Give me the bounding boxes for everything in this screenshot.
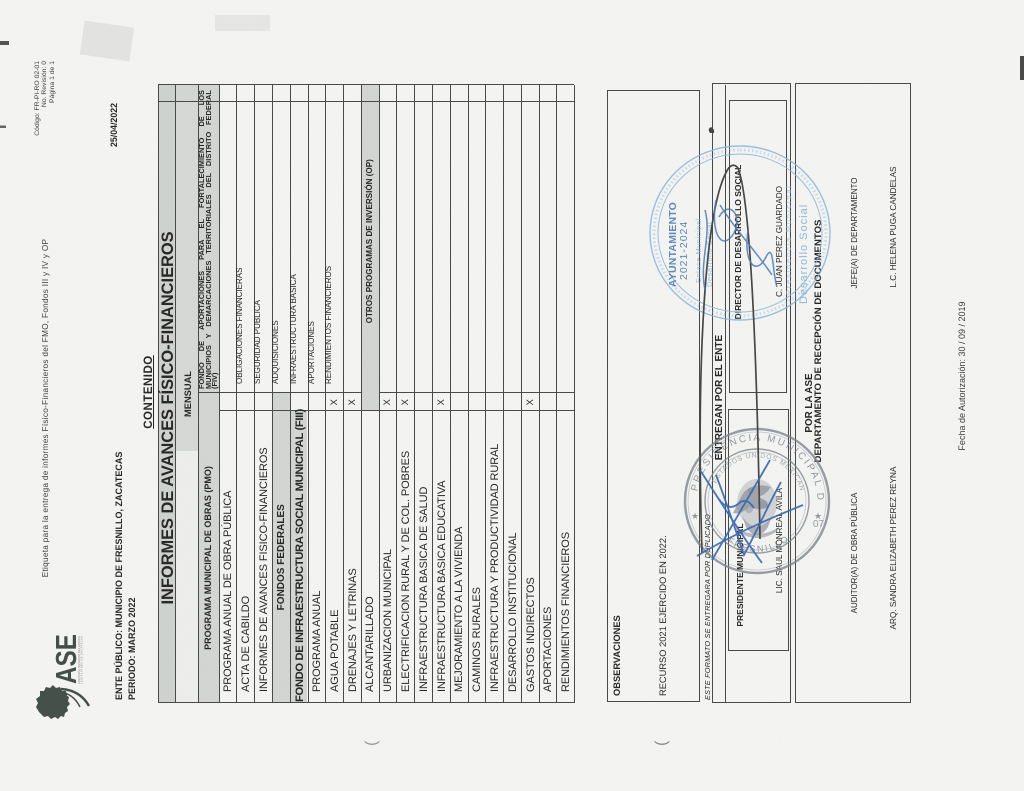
svg-text:LEGISLATURA DE ZACATECAS: LEGISLATURA DE ZACATECAS <box>80 636 84 684</box>
svg-text:Desarrollo Social: Desarrollo Social <box>798 204 810 304</box>
svg-text:★: ★ <box>691 511 699 521</box>
svg-text:2021-2024: 2021-2024 <box>678 221 690 280</box>
svg-text:(: ( <box>653 740 670 746</box>
svg-text:Presidencia Municipal: Presidencia Municipal <box>784 184 793 295</box>
svg-text:07: 07 <box>813 519 825 530</box>
svg-text:(: ( <box>363 740 380 746</box>
svg-text:Enlace Municipal: Enlace Municipal <box>694 218 703 283</box>
